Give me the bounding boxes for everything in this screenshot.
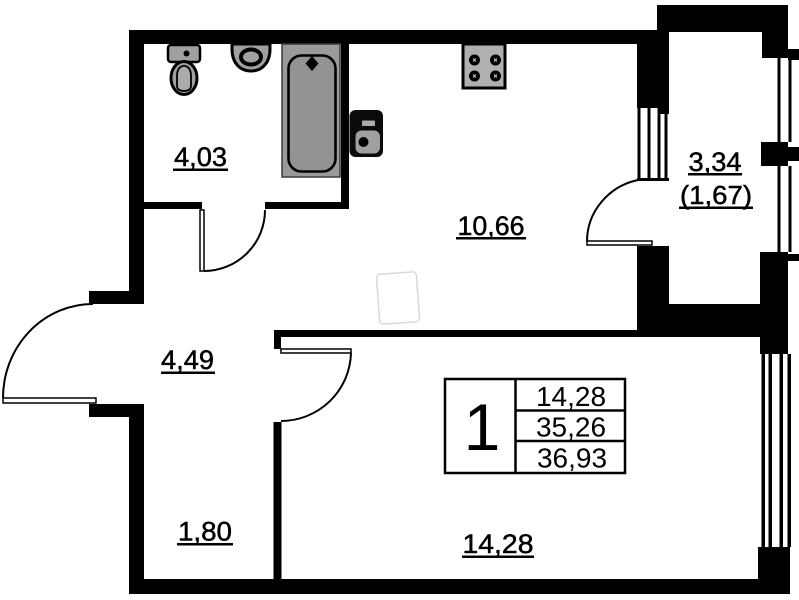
svg-text:10,66: 10,66 <box>458 211 525 241</box>
svg-text:(1,67): (1,67) <box>680 180 752 210</box>
svg-text:3,34: 3,34 <box>689 147 742 177</box>
svg-text:14,28: 14,28 <box>536 381 606 412</box>
svg-text:1,80: 1,80 <box>178 517 232 547</box>
svg-text:36,93: 36,93 <box>537 443 607 474</box>
svg-text:1: 1 <box>464 390 501 464</box>
svg-text:35,26: 35,26 <box>536 412 606 443</box>
svg-text:14,28: 14,28 <box>463 529 534 559</box>
svg-text:4,49: 4,49 <box>161 345 214 375</box>
svg-text:4,03: 4,03 <box>174 142 227 172</box>
